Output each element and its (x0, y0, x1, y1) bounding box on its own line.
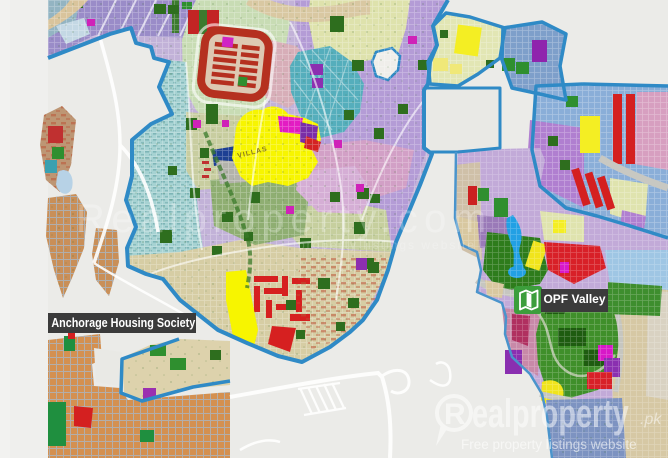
svg-text:property listings website: property listings website (298, 238, 476, 252)
svg-text:Realproperty.com: Realproperty.com (76, 197, 493, 241)
